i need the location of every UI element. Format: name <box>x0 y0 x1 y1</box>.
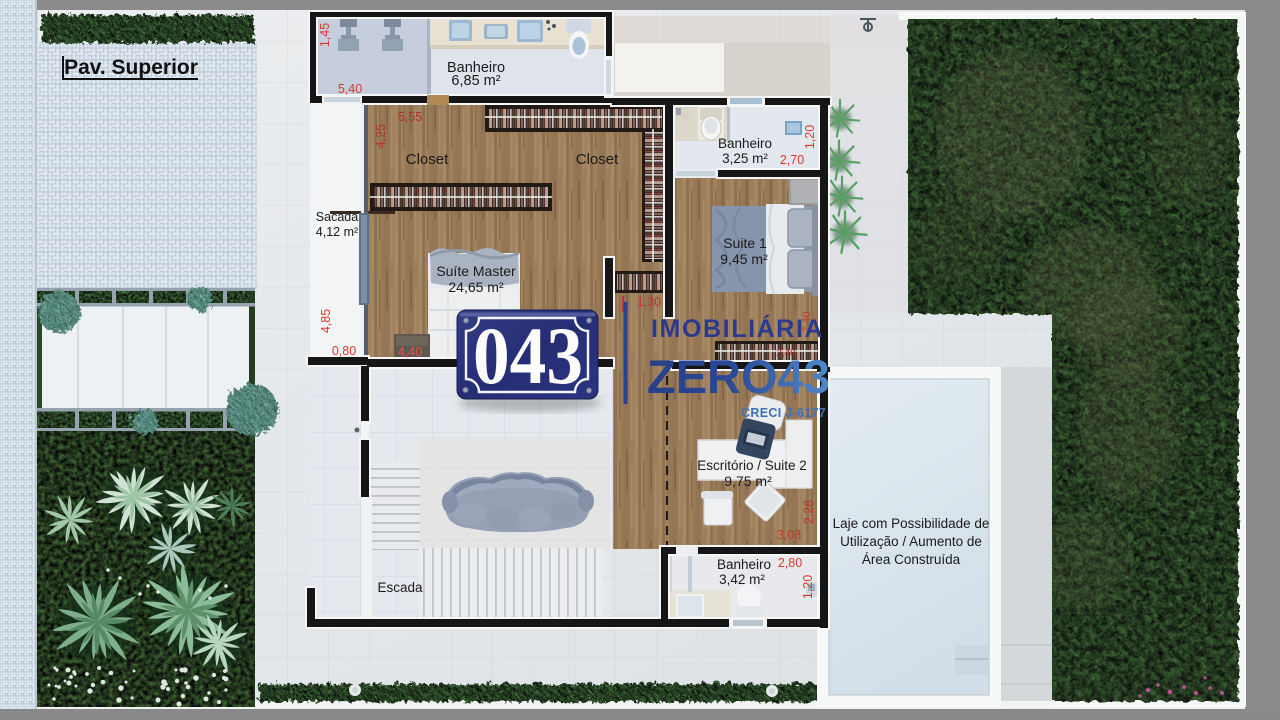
svg-text:4,25: 4,25 <box>374 124 388 148</box>
svg-text:2,70: 2,70 <box>780 153 804 167</box>
svg-text:2,28: 2,28 <box>802 500 816 524</box>
svg-text:3,25 m²: 3,25 m² <box>722 151 768 166</box>
svg-text:ZERO43: ZERO43 <box>647 350 830 403</box>
svg-text:5,40: 5,40 <box>338 82 362 96</box>
svg-text:Banheiro: Banheiro <box>718 136 772 151</box>
svg-text:Banheiro: Banheiro <box>717 557 771 572</box>
svg-text:3,42 m²: 3,42 m² <box>719 572 765 587</box>
svg-text:Suite 1: Suite 1 <box>723 235 767 251</box>
svg-text:9,45 m²: 9,45 m² <box>720 251 768 267</box>
svg-text:Suíte Master: Suíte Master <box>436 263 516 279</box>
svg-text:6,85 m²: 6,85 m² <box>451 73 500 89</box>
svg-text:4,85: 4,85 <box>319 309 333 333</box>
svg-text:1,20: 1,20 <box>801 575 815 599</box>
svg-text:1,45: 1,45 <box>318 23 332 47</box>
svg-text:5,55: 5,55 <box>398 110 422 124</box>
svg-text:Pav. Superior: Pav. Superior <box>64 56 198 79</box>
svg-text:3,08: 3,08 <box>777 528 801 542</box>
svg-text:24,65 m²: 24,65 m² <box>448 279 504 295</box>
svg-text:1,30: 1,30 <box>637 295 661 309</box>
svg-text:Closet: Closet <box>406 151 449 168</box>
svg-text:Escritório / Suite 2: Escritório / Suite 2 <box>697 458 807 473</box>
svg-text:Escada: Escada <box>377 580 423 595</box>
svg-text:043: 043 <box>473 310 583 401</box>
svg-text:Área Construída: Área Construída <box>862 552 961 567</box>
svg-text:Laje com Possibilidade de: Laje com Possibilidade de <box>833 516 990 531</box>
svg-text:IMOBILIÁRIA: IMOBILIÁRIA <box>651 314 824 343</box>
svg-text:CRECI J-6177: CRECI J-6177 <box>741 406 826 420</box>
svg-text:Closet: Closet <box>576 151 619 168</box>
svg-text:4,12 m²: 4,12 m² <box>316 225 358 239</box>
svg-text:0,80: 0,80 <box>332 344 356 358</box>
svg-text:Sacada: Sacada <box>316 210 358 224</box>
svg-text:1,20: 1,20 <box>803 125 817 149</box>
svg-text:4,40: 4,40 <box>398 345 422 359</box>
svg-text:Utilização / Aumento de: Utilização / Aumento de <box>840 534 982 549</box>
svg-text:2,80: 2,80 <box>778 556 802 570</box>
svg-text:9,75 m²: 9,75 m² <box>724 473 772 489</box>
